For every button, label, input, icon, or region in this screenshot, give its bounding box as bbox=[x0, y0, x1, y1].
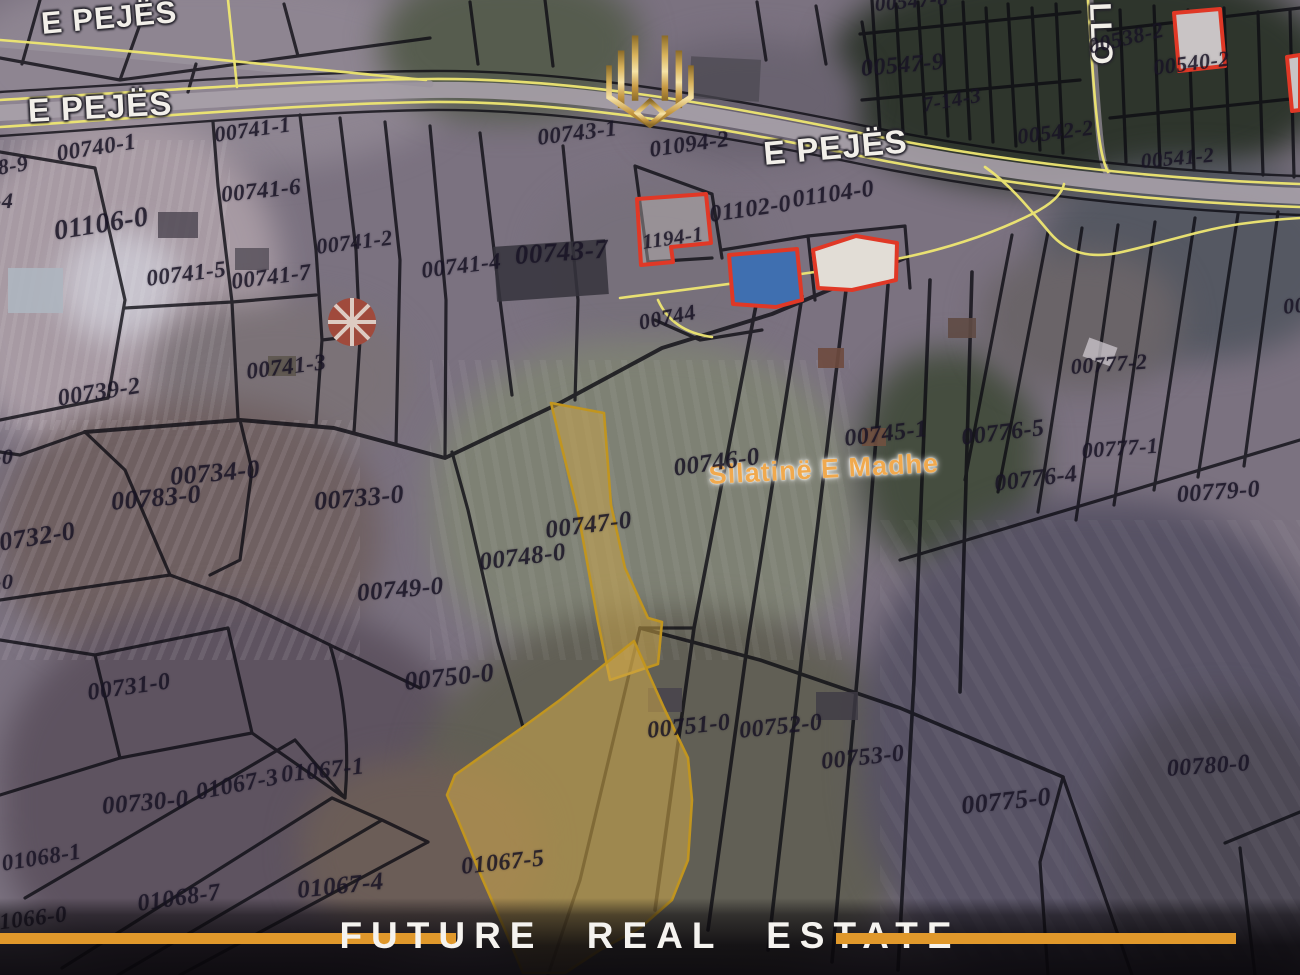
parcel-label: 00744 bbox=[637, 301, 698, 334]
map-labels: E PEJËSE PEJËSE PEJËSLLOSllatinë E Madhe… bbox=[0, 0, 1300, 975]
parcel-label: 00750-0 bbox=[403, 660, 495, 695]
parcel-label: 00775-0 bbox=[960, 784, 1052, 819]
parcel-label: 00741-1 bbox=[213, 113, 292, 145]
parcel-label: 00547-9 bbox=[860, 50, 945, 81]
parcel-label: 00749-0 bbox=[356, 573, 445, 605]
parcel-label: 00741-2 bbox=[315, 227, 394, 258]
bottom-banner: FUTURE REAL ESTATE bbox=[0, 898, 1300, 975]
parcel-label: 00747-0 bbox=[544, 507, 633, 542]
parcel-label: 00739-2 bbox=[56, 374, 142, 411]
parcel-label: 00741-5 bbox=[145, 257, 227, 290]
parcel-label: 00751-0 bbox=[646, 710, 732, 743]
parcel-label: 8-9 bbox=[0, 152, 30, 179]
parcel-label: 00741-3 bbox=[245, 350, 327, 383]
parcel-label: -4 bbox=[0, 190, 13, 212]
parcel-label: 01068-1 bbox=[0, 839, 83, 874]
road-label: E PEJËS bbox=[27, 86, 173, 127]
parcel-label: 00 bbox=[1282, 294, 1300, 318]
parcel-label: 00730-0 bbox=[101, 786, 190, 818]
parcel-label: 00753-0 bbox=[820, 741, 906, 774]
parcel-label: 00541-2 bbox=[1140, 145, 1215, 172]
parcel-label: 00540-2 bbox=[1152, 48, 1231, 79]
parcel-label: 00547-8 bbox=[874, 0, 949, 15]
parcel-label: 7-14-3 bbox=[921, 85, 983, 116]
parcel-label: 01067-1 bbox=[280, 754, 366, 787]
banner-bar-right bbox=[836, 933, 1236, 944]
map-canvas: E PEJËSE PEJËSE PEJËSLLOSllatinë E Madhe… bbox=[0, 0, 1300, 975]
parcel-label: 00732-0 bbox=[0, 518, 77, 558]
parcel-label: 00777-2 bbox=[1070, 351, 1148, 378]
parcel-label: 00783-0 bbox=[110, 481, 202, 515]
parcel-label: 01102-0 bbox=[708, 192, 793, 227]
parcel-label: 00741-6 bbox=[220, 175, 302, 206]
parcel-label: 01067-3 bbox=[194, 765, 281, 804]
parcel-label: 00731-0 bbox=[86, 669, 172, 704]
road-label: E PEJËS bbox=[762, 124, 909, 169]
road-label: E PEJËS bbox=[40, 0, 178, 39]
parcel-label: 00776-4 bbox=[993, 462, 1079, 496]
parcel-label: -0 bbox=[0, 571, 13, 593]
parcel-label: 00780-0 bbox=[1166, 751, 1251, 781]
parcel-label: 00776-5 bbox=[960, 416, 1046, 450]
parcel-label: 00542-2 bbox=[1016, 117, 1095, 148]
logo-emblem-icon bbox=[596, 8, 704, 132]
parcel-label: 00748-0 bbox=[478, 539, 567, 574]
parcel-label: 00741-4 bbox=[420, 249, 502, 282]
parcel-label: 00740-1 bbox=[55, 129, 138, 164]
parcel-label: 01067-5 bbox=[460, 846, 546, 879]
parcel-label: -0 bbox=[0, 446, 13, 468]
parcel-label: 00777-1 bbox=[1081, 435, 1159, 462]
parcel-label: 00779-0 bbox=[1176, 477, 1261, 507]
parcel-label: 00752-0 bbox=[738, 710, 824, 743]
parcel-label: 00743-7 bbox=[514, 235, 609, 268]
parcel-label: 00741-7 bbox=[230, 260, 312, 293]
parcel-label: 00733-0 bbox=[313, 481, 405, 515]
parcel-label: 00745-1 bbox=[843, 417, 929, 451]
parcel-label: 1194-1 bbox=[641, 223, 705, 252]
parcel-label: 01106-0 bbox=[52, 203, 150, 246]
parcel-label: 01104-0 bbox=[791, 177, 876, 212]
company-logo bbox=[596, 8, 704, 132]
